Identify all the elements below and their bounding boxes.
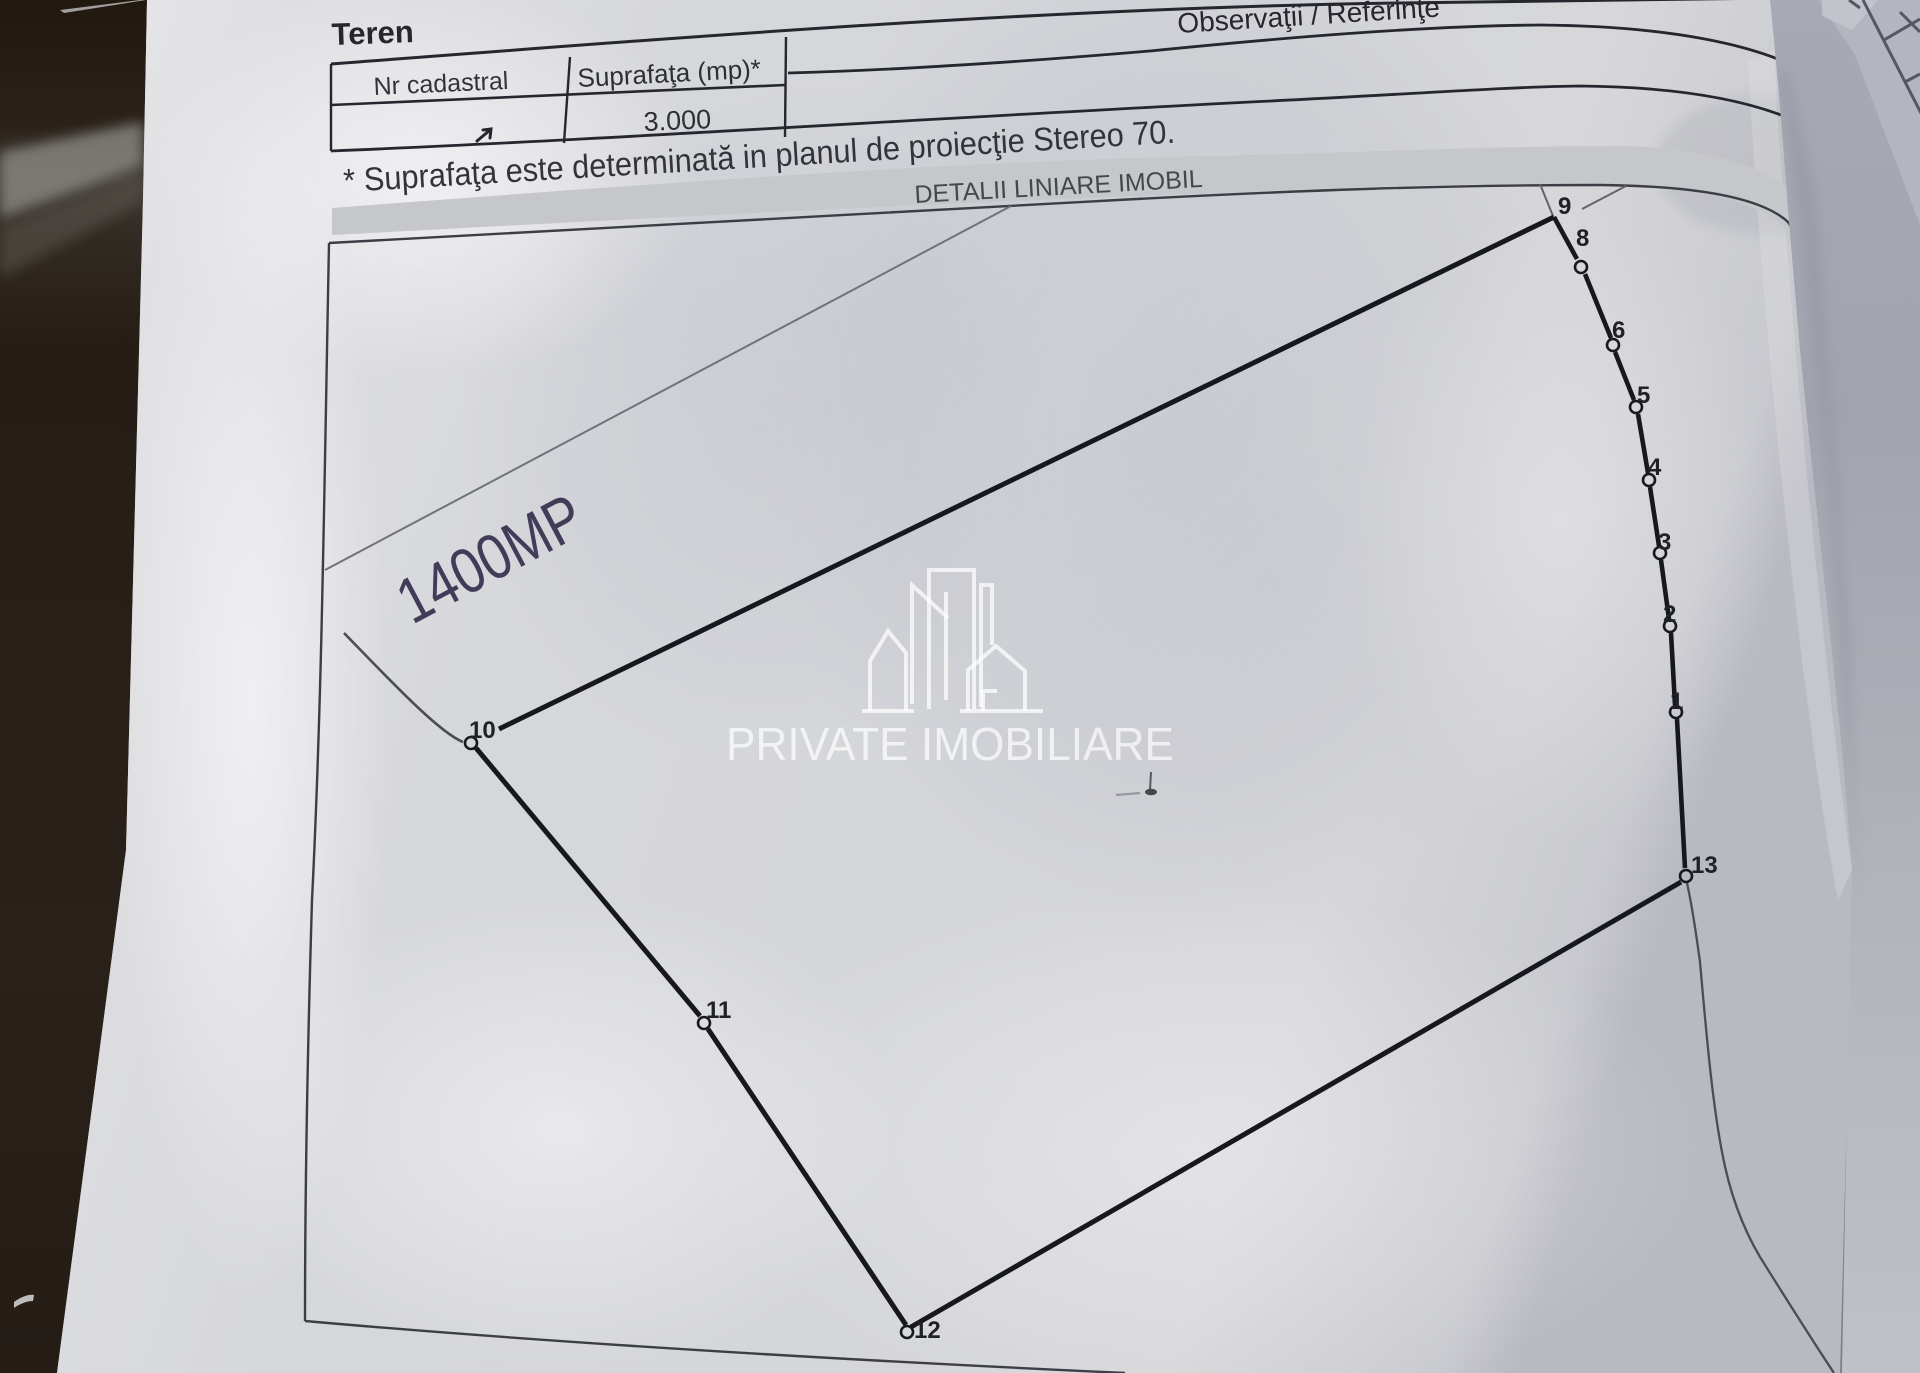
svg-text:4: 4 xyxy=(1648,454,1662,481)
svg-text:6: 6 xyxy=(1612,317,1625,344)
svg-text:11: 11 xyxy=(706,997,731,1024)
svg-text:3.000: 3.000 xyxy=(643,104,712,137)
svg-text:3: 3 xyxy=(1658,529,1671,556)
svg-text:12: 12 xyxy=(914,1317,941,1344)
svg-text:10: 10 xyxy=(469,717,496,744)
svg-text:5: 5 xyxy=(1637,382,1650,409)
svg-text:9: 9 xyxy=(1558,193,1571,220)
svg-text:8: 8 xyxy=(1576,225,1589,252)
svg-text:1: 1 xyxy=(1670,688,1683,715)
svg-text:PRIVATE IMOBILIARE: PRIVATE IMOBILIARE xyxy=(726,718,1174,770)
svg-text:13: 13 xyxy=(1691,852,1718,879)
svg-text:2: 2 xyxy=(1663,601,1676,628)
svg-text:Teren: Teren xyxy=(331,14,414,52)
